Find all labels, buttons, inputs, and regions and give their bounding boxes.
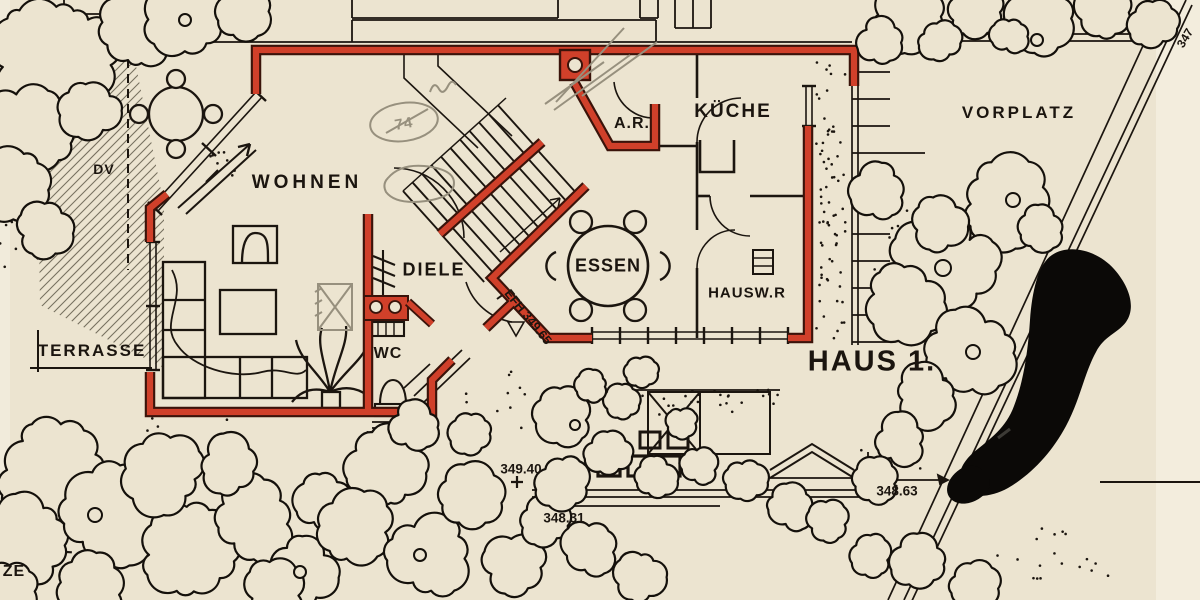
site-plan-sheet: WOHNEN KÜCHE A.R. ESSEN DIELE WC HAUSW.R… bbox=[0, 0, 1200, 600]
label-room-wohnen: WOHNEN bbox=[252, 172, 363, 194]
label-room-essen: ESSEN bbox=[575, 256, 641, 277]
terrace-table bbox=[149, 87, 203, 141]
label-room-kueche: KÜCHE bbox=[694, 101, 772, 123]
label-room-diele: DIELE bbox=[402, 260, 465, 281]
label-terrasse: TERRASSE bbox=[38, 341, 147, 361]
label-room-wc: WC bbox=[374, 345, 403, 363]
label-haus-1: HAUS 1. bbox=[808, 346, 936, 379]
elevation-348-31: 348.31 bbox=[543, 511, 584, 526]
label-boundary-ze: ZE bbox=[3, 563, 25, 581]
elevation-349-40: 349.40 bbox=[500, 462, 541, 477]
label-room-ar: A.R. bbox=[614, 115, 650, 133]
label-vorplatz: VORPLATZ bbox=[962, 103, 1076, 123]
label-room-hauswr: HAUSW.R bbox=[708, 285, 786, 302]
site-plan-drawing bbox=[0, 0, 1200, 600]
label-dv: DV bbox=[93, 161, 114, 177]
elevation-348-63: 348.63 bbox=[876, 484, 917, 499]
pencil-number: 74 bbox=[393, 114, 414, 134]
paper-edge bbox=[1156, 0, 1200, 600]
chimney-flue bbox=[568, 58, 582, 72]
